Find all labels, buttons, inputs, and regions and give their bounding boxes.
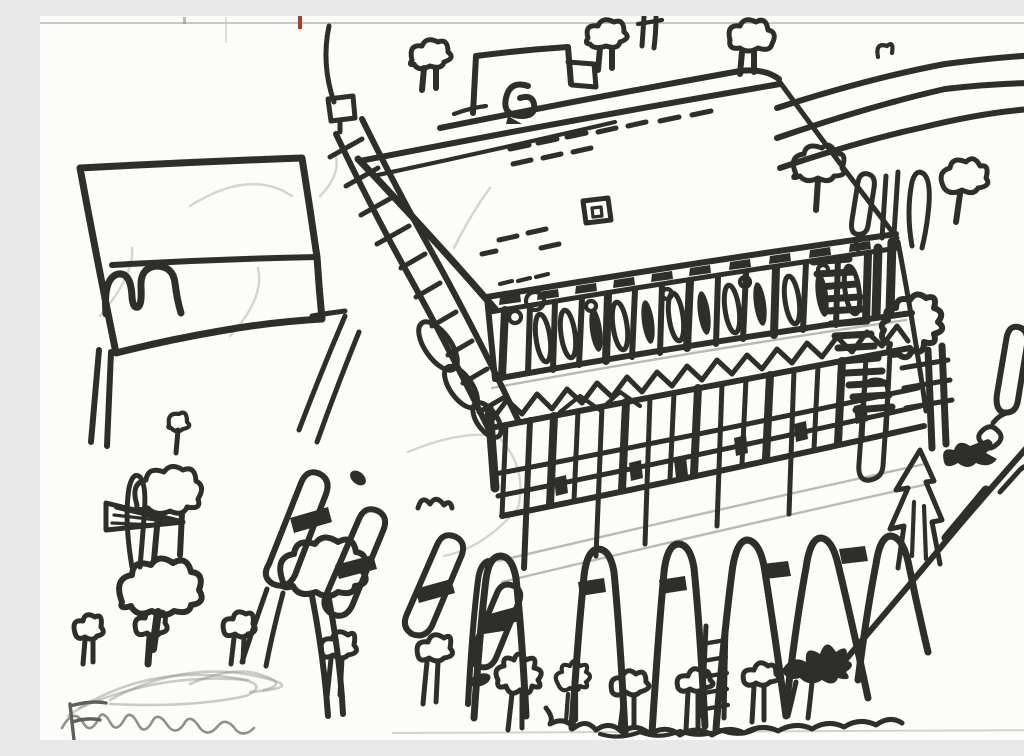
scanned-drawing: Scanned child's black marker drawing of … [40, 16, 1024, 740]
drawing-canvas [40, 16, 1024, 740]
red-registration-tick [298, 16, 302, 29]
sign-leg-right [107, 352, 111, 446]
